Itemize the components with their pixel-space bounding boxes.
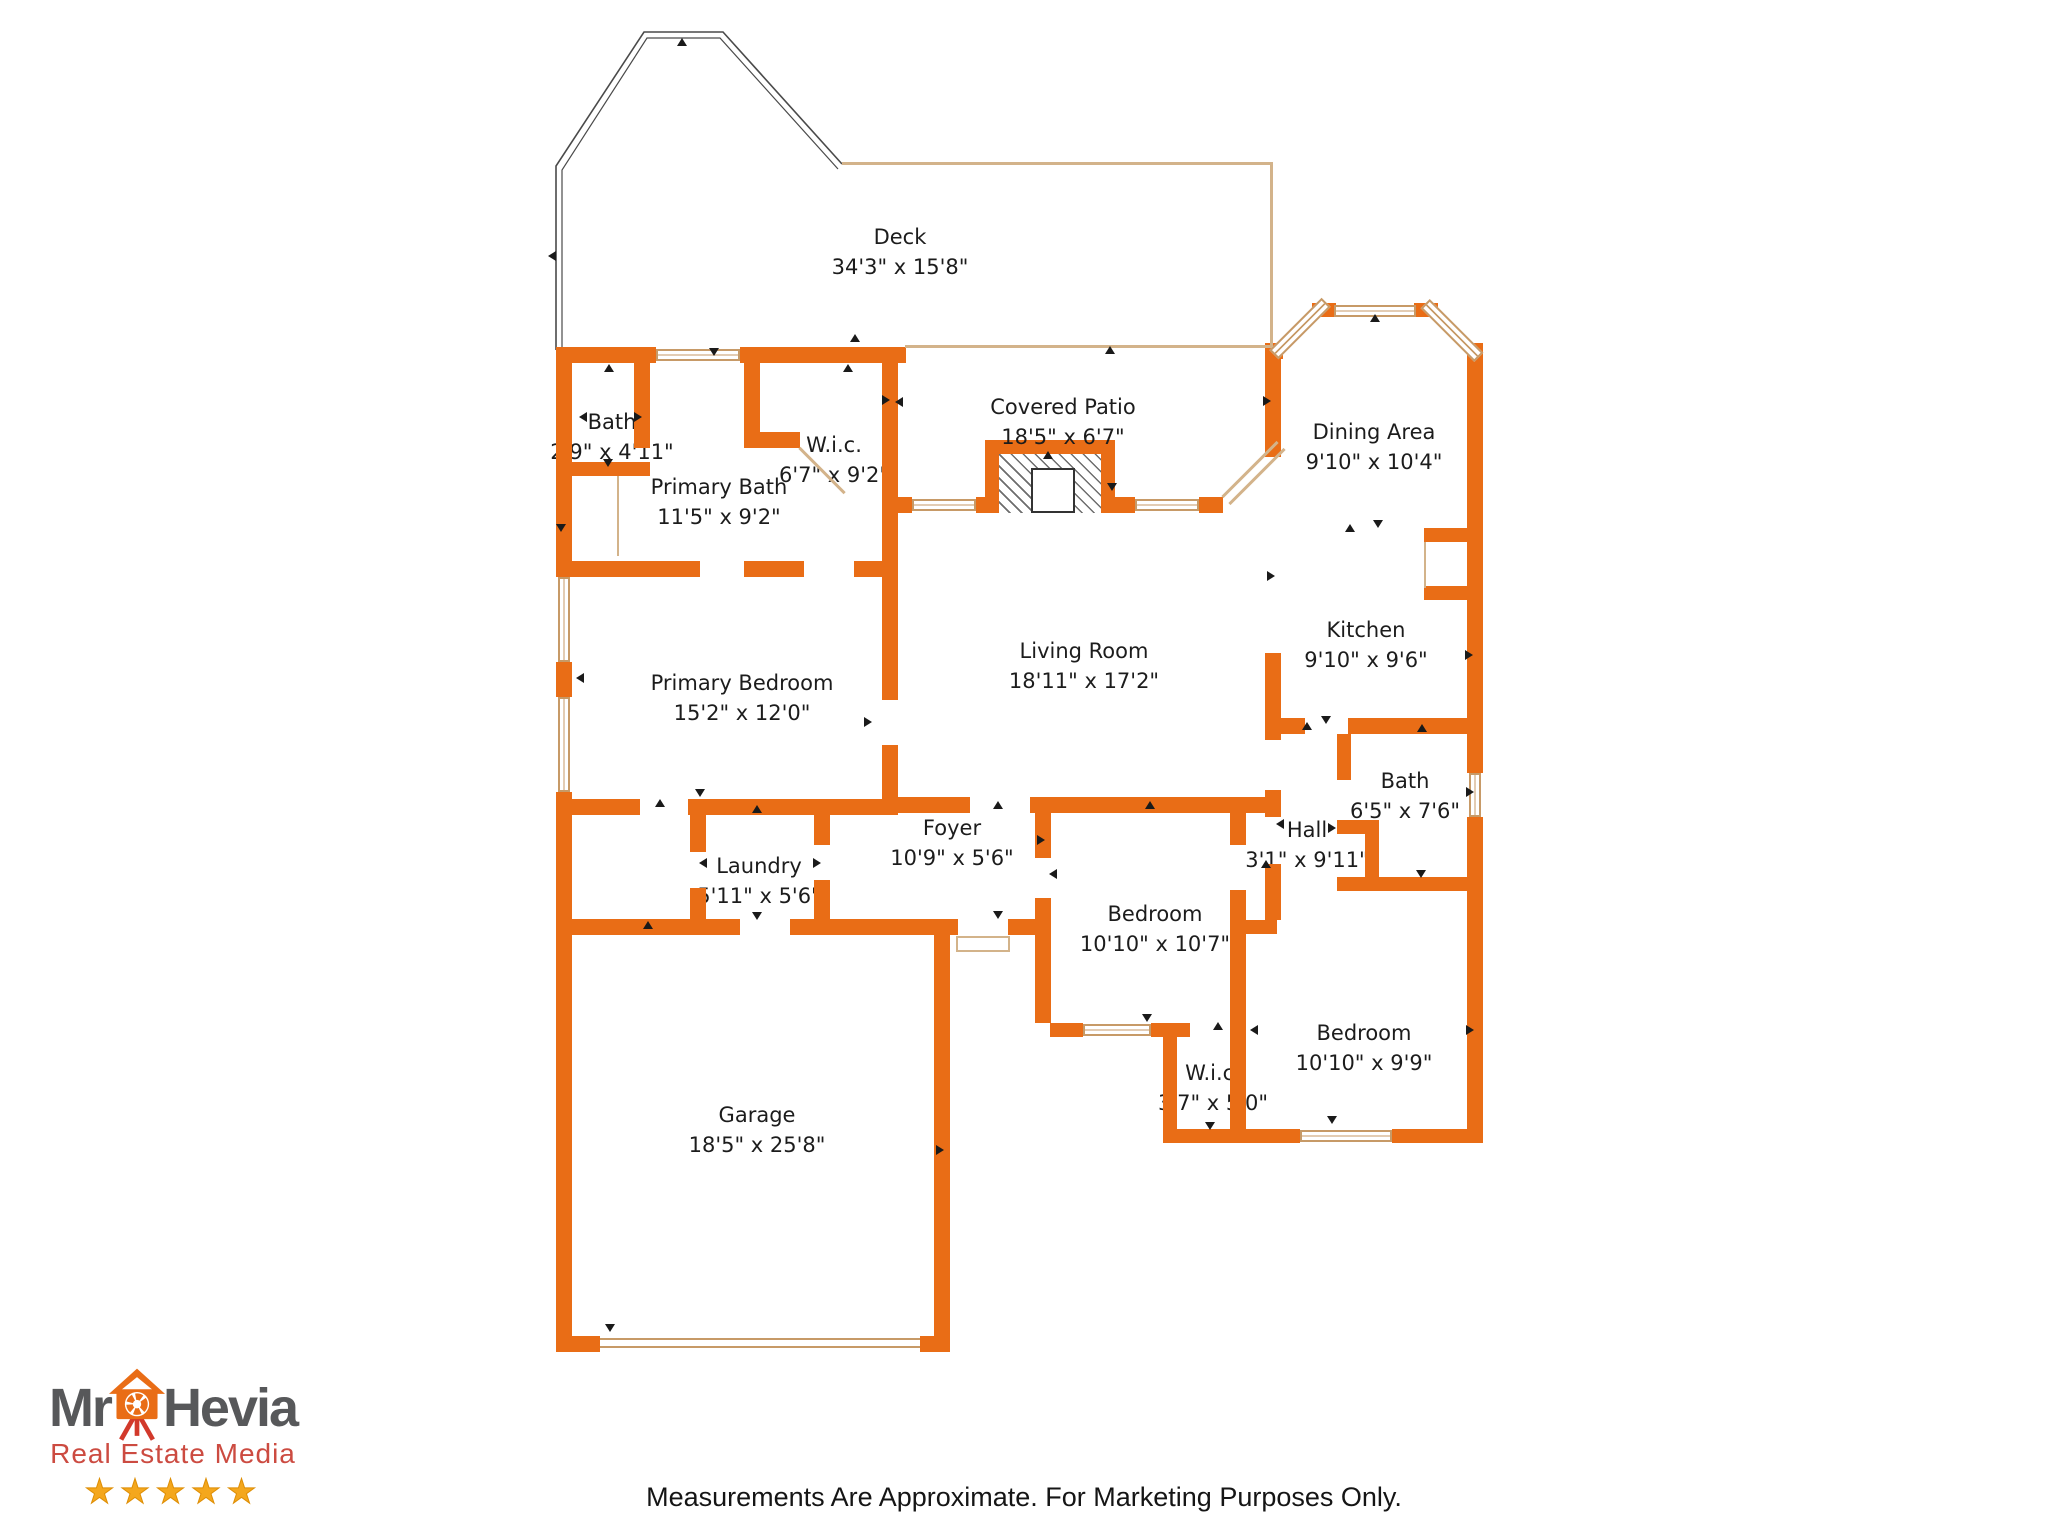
wall-segment <box>934 935 950 1352</box>
door-direction-arrow <box>634 412 642 422</box>
door-direction-arrow <box>1466 787 1474 797</box>
logo-brand-hevia: Hevia <box>163 1378 297 1438</box>
window <box>1135 499 1199 511</box>
wall-segment <box>744 432 800 448</box>
door-direction-arrow <box>1037 835 1045 845</box>
door-direction-arrow <box>993 801 1003 809</box>
thin-line <box>617 476 619 556</box>
logo-tagline: Real Estate Media <box>48 1438 298 1470</box>
wall-segment <box>1246 920 1277 934</box>
door-direction-arrow <box>1327 1116 1337 1124</box>
wall-segment <box>1163 1129 1300 1143</box>
wall-segment <box>556 363 572 577</box>
window <box>558 697 570 792</box>
wall-segment <box>556 561 700 577</box>
room-label-laundry: Laundry5'11" x 5'6" <box>697 851 820 911</box>
door-direction-arrow <box>1370 314 1380 322</box>
door-direction-arrow <box>993 911 1003 919</box>
room-label-living-room: Living Room18'11" x 17'2" <box>1009 636 1159 696</box>
wall-segment <box>1424 528 1467 542</box>
wall-segment <box>1008 919 1035 935</box>
thin-line <box>842 162 1272 165</box>
wall-segment <box>556 347 656 363</box>
door-direction-arrow <box>1107 483 1117 491</box>
door-direction-arrow <box>1049 869 1057 879</box>
garage-door <box>600 1338 930 1348</box>
door-direction-arrow <box>548 251 556 261</box>
window <box>558 577 570 662</box>
wall-segment <box>1424 586 1467 600</box>
door-direction-arrow <box>1213 1022 1223 1030</box>
door-direction-arrow <box>1261 860 1271 868</box>
door-direction-arrow <box>579 412 587 422</box>
wall-segment <box>1230 890 1246 1143</box>
thin-line <box>905 345 1272 348</box>
wall-segment <box>556 662 572 697</box>
wall-segment <box>688 799 898 815</box>
wall-segment <box>1392 1129 1483 1143</box>
door-direction-arrow <box>1205 1122 1215 1130</box>
door-direction-arrow <box>576 673 584 683</box>
door-direction-arrow <box>603 459 613 467</box>
room-label-primary-bath: Primary Bath11'5" x 9'2" <box>651 472 788 532</box>
wall-segment <box>1035 898 1051 1023</box>
wall-segment <box>854 561 898 577</box>
thin-line <box>1424 542 1426 588</box>
door-direction-arrow <box>1417 724 1427 732</box>
wall-segment <box>1177 1023 1190 1037</box>
door-direction-arrow <box>1416 870 1426 878</box>
wall-segment <box>1050 1023 1083 1037</box>
wall-segment <box>1199 497 1223 513</box>
wall-segment <box>814 815 830 845</box>
door-direction-arrow <box>604 364 614 372</box>
wall-segment <box>976 497 985 513</box>
wall-segment <box>690 815 706 852</box>
door-direction-arrow <box>1145 801 1155 809</box>
room-label-bedroom-center: Bedroom10'10" x 10'7" <box>1080 899 1230 959</box>
wall-segment <box>556 799 640 815</box>
door-direction-arrow <box>1267 571 1275 581</box>
room-label-garage: Garage18'5" x 25'8" <box>689 1100 826 1160</box>
door-direction-arrow <box>695 789 705 797</box>
door-direction-arrow <box>1276 819 1284 829</box>
front-door-step <box>956 936 1010 952</box>
wall-segment <box>1365 834 1379 880</box>
door-direction-arrow <box>1142 1014 1152 1022</box>
wall-segment <box>814 880 830 919</box>
window <box>1300 1130 1392 1142</box>
house-camera-tripod-icon <box>109 1368 165 1444</box>
door-direction-arrow <box>605 1324 615 1332</box>
wall-segment <box>920 1336 950 1352</box>
wall-segment <box>1467 817 1483 1143</box>
door-direction-arrow <box>699 858 707 868</box>
door-direction-arrow <box>643 921 653 929</box>
room-label-bedroom-right: Bedroom10'10" x 9'9" <box>1296 1018 1433 1078</box>
room-label-foyer: Foyer10'9" x 5'6" <box>890 813 1013 873</box>
wall-segment <box>1467 357 1483 773</box>
door-direction-arrow <box>843 364 853 372</box>
door-direction-arrow <box>895 397 903 407</box>
five-star-rating: ★★★★★ <box>48 1472 298 1512</box>
wall-segment <box>1115 497 1135 513</box>
wall-segment <box>744 561 804 577</box>
door-direction-arrow <box>1345 524 1355 532</box>
wall-segment <box>1337 734 1351 780</box>
wall-segment <box>1265 718 1305 734</box>
door-direction-arrow <box>1373 520 1383 528</box>
logo: Mr Hevia Real Estate Media ★★★★★ <box>48 1366 298 1512</box>
wall-segment <box>882 797 970 813</box>
door-direction-arrow <box>864 717 872 727</box>
door-direction-arrow <box>882 395 890 405</box>
door-direction-arrow <box>1465 650 1473 660</box>
logo-brand-mr: Mr <box>49 1378 111 1438</box>
floor-plan-canvas: Deck34'3" x 15'8" Bath2'9" x 4'11" W.i.c… <box>0 0 2048 1536</box>
wall-segment <box>1265 790 1281 817</box>
door-direction-arrow <box>1466 1025 1474 1035</box>
wall-segment <box>634 363 650 448</box>
door-direction-arrow <box>752 912 762 920</box>
disclaimer-text: Measurements Are Approximate. For Market… <box>646 1482 1402 1513</box>
window <box>1083 1024 1151 1036</box>
room-label-kitchen: Kitchen9'10" x 9'6" <box>1304 615 1427 675</box>
wall-segment <box>1163 1023 1177 1143</box>
window <box>912 499 976 511</box>
door-direction-arrow <box>655 799 665 807</box>
wall-segment <box>1337 820 1379 834</box>
wall-segment <box>790 919 950 935</box>
wall-segment <box>690 888 706 919</box>
door-direction-arrow <box>850 334 860 342</box>
wall-segment <box>898 497 912 513</box>
wall-segment <box>690 919 740 935</box>
door-direction-arrow <box>1263 396 1271 406</box>
door-direction-arrow <box>677 38 687 46</box>
door-direction-arrow <box>752 805 762 813</box>
deck-outline <box>0 0 2048 1536</box>
room-label-primary-bedroom: Primary Bedroom15'2" x 12'0" <box>651 668 834 728</box>
window <box>656 349 740 361</box>
door-direction-arrow <box>556 524 566 532</box>
firebox <box>1031 468 1075 513</box>
door-direction-arrow <box>936 1145 944 1155</box>
thin-line <box>1270 162 1273 347</box>
wall-segment <box>556 1336 600 1352</box>
wall-segment <box>1348 718 1467 734</box>
door-direction-arrow <box>1250 1025 1258 1035</box>
door-direction-arrow <box>1302 722 1312 730</box>
wall-segment <box>1230 813 1246 845</box>
door-direction-arrow <box>1043 451 1053 459</box>
wall-segment <box>1265 864 1281 920</box>
wall-segment <box>744 363 760 432</box>
door-direction-arrow <box>1105 346 1115 354</box>
room-label-dining-area: Dining Area9'10" x 10'4" <box>1306 417 1443 477</box>
room-label-covered-patio: Covered Patio18'5" x 6'7" <box>990 392 1135 452</box>
wall-segment <box>572 919 690 935</box>
wall-segment <box>556 792 572 1352</box>
door-direction-arrow <box>1321 716 1331 724</box>
wall-segment <box>1337 877 1467 891</box>
door-direction-arrow <box>709 348 719 356</box>
door-direction-arrow <box>1328 823 1336 833</box>
door-direction-arrow <box>813 858 821 868</box>
room-label-deck: Deck34'3" x 15'8" <box>832 222 969 282</box>
